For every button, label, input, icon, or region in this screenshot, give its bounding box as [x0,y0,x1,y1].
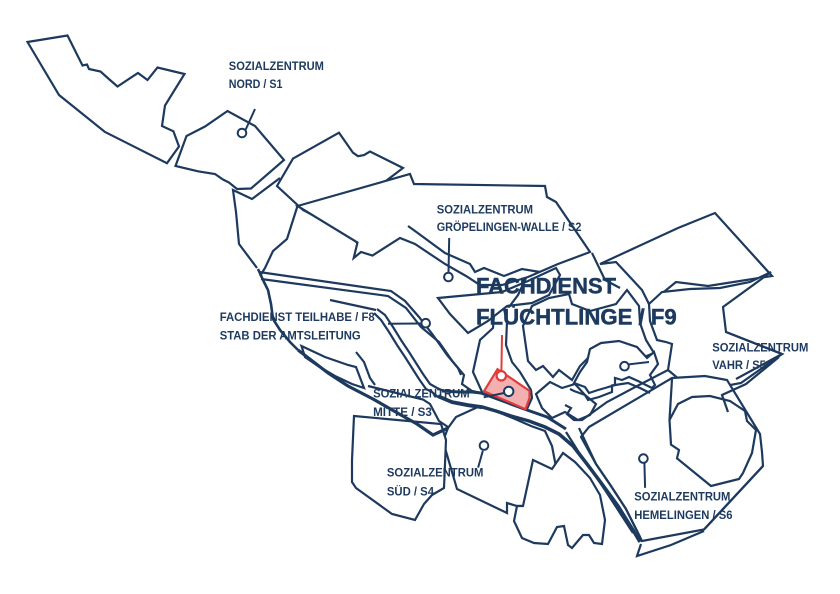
svg-text:SOZIALZENTRUM: SOZIALZENTRUM [387,466,484,480]
svg-text:SOZIALZENTRUM: SOZIALZENTRUM [229,59,324,73]
svg-text:GRÖPELINGEN-WALLE / S2: GRÖPELINGEN-WALLE / S2 [437,219,582,234]
svg-text:SOZIALZENTRUM: SOZIALZENTRUM [634,489,730,503]
svg-text:FACHDIENST: FACHDIENST [476,274,617,299]
svg-text:VAHR / S5: VAHR / S5 [712,358,766,372]
svg-text:NORD / S1: NORD / S1 [229,77,283,91]
svg-text:SÜD / S4: SÜD / S4 [387,484,434,499]
svg-text:SOZIALZENTRUM: SOZIALZENTRUM [437,203,533,217]
svg-text:FLÜCHTLINGE / F9: FLÜCHTLINGE / F9 [476,305,677,330]
svg-text:STAB DER AMTSLEITUNG: STAB DER AMTSLEITUNG [220,328,361,342]
svg-text:FACHDIENST TEILHABE / F8: FACHDIENST TEILHABE / F8 [220,310,375,324]
svg-text:SOZIALZENTRUM: SOZIALZENTRUM [712,341,808,355]
